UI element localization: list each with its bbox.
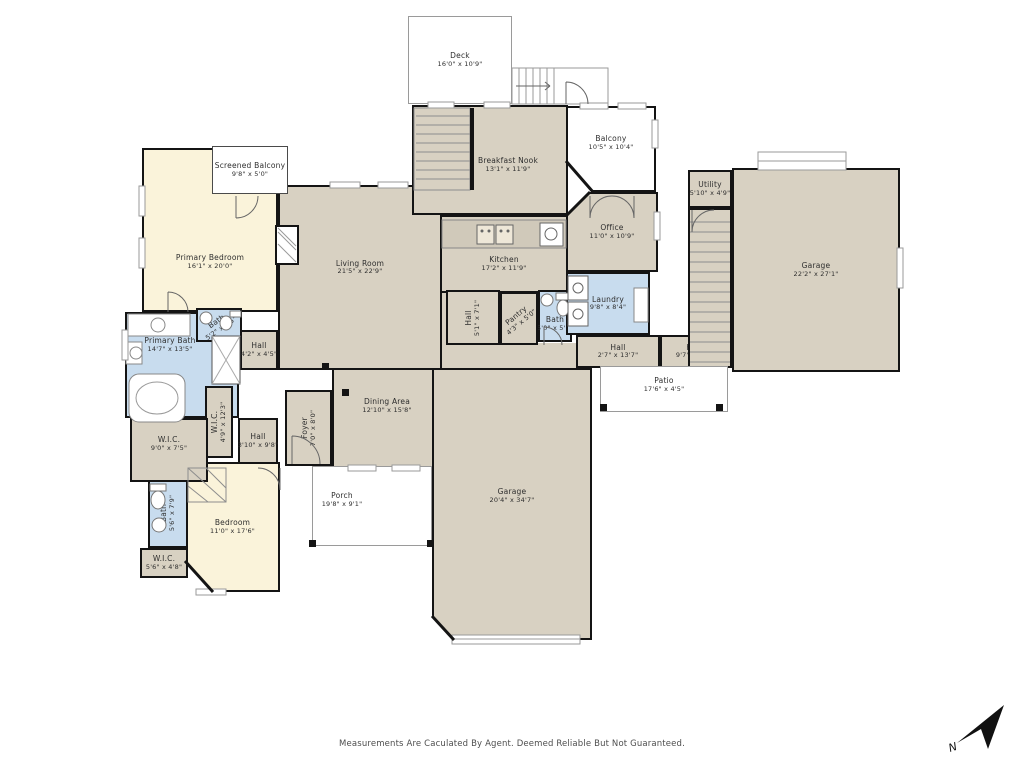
room-label-foyer: Foyer7'0" x 8'0" xyxy=(300,410,316,446)
room-bath-primary-wc: Bath5'2" x 7'5" xyxy=(196,308,242,342)
floor-plan: Living Room21'5" x 22'9"Dining Area12'10… xyxy=(0,0,1024,768)
room-label-kitchen: Kitchen17'2" x 11'9" xyxy=(482,256,527,272)
room-hall-kitchen: Hall5'1" x 7'1" xyxy=(446,290,500,345)
room-label-hall-kitchen: Hall5'1" x 7'1" xyxy=(465,299,481,335)
room-garage-right: Garage22'2" x 27'1" xyxy=(732,168,900,372)
room-label-balcony: Balcony10'5" x 10'4" xyxy=(589,135,634,151)
room-porch: Porch19'8" x 9'1" xyxy=(312,466,432,546)
room-label-screened-balcony: Screened Balcony9'8" x 5'0" xyxy=(215,162,285,178)
room-label-wic-left: W.I.C.9'0" x 7'5" xyxy=(151,436,187,452)
room-stairwell-right xyxy=(688,208,732,368)
room-label-bath-bedroom: Bath5'6" x 7'9" xyxy=(160,495,176,531)
room-label-bedroom: Bedroom11'0" x 17'6" xyxy=(210,519,255,535)
room-label-wic-bottom: W.I.C.5'6" x 4'8" xyxy=(146,555,182,571)
room-label-laundry: Laundry9'8" x 8'4" xyxy=(590,295,626,311)
room-garage-bottom: Garage20'4" x 34'7" xyxy=(432,368,592,640)
room-breakfast-nook: Breakfast Nook13'1" x 11'9" xyxy=(412,105,568,215)
room-wic-left: W.I.C.9'0" x 7'5" xyxy=(130,418,208,482)
room-label-dining-area: Dining Area12'10" x 15'8" xyxy=(362,398,411,414)
room-label-hall-mid-left: Hall2'7" x 13'7" xyxy=(598,343,639,359)
floor-plan-page: Living Room21'5" x 22'9"Dining Area12'10… xyxy=(0,0,1024,768)
room-label-bath-primary-wc: Bath5'2" x 7'5" xyxy=(200,308,239,342)
room-filler-dining-gap xyxy=(442,343,576,370)
room-label-hall-bedroom: Hall3'10" x 9'8" xyxy=(238,433,279,449)
room-deck: Deck16'0" x 10'9" xyxy=(408,16,512,104)
room-label-breakfast-nook: Breakfast Nook13'1" x 11'9" xyxy=(478,157,538,173)
room-label-garage-right: Garage22'2" x 27'1" xyxy=(794,262,839,278)
room-label-garage-bottom: Garage20'4" x 34'7" xyxy=(490,488,535,504)
room-hall-bath: Hall4'2" x 4'5" xyxy=(240,330,278,370)
room-dining-area: Dining Area12'10" x 15'8" xyxy=(332,368,442,468)
room-label-utility: Utility5'10" x 4'9" xyxy=(690,181,731,197)
room-label-primary-bedroom: Primary Bedroom16'1" x 20'0" xyxy=(176,254,244,270)
room-label-patio: Patio17'6" x 4'5" xyxy=(644,377,685,393)
room-screened-balcony: Screened Balcony9'8" x 5'0" xyxy=(212,146,288,194)
room-kitchen: Kitchen17'2" x 11'9" xyxy=(440,215,568,293)
room-label-porch: Porch19'8" x 9'1" xyxy=(322,492,363,508)
room-office: Office11'0" x 10'9" xyxy=(566,192,658,272)
room-hall-bedroom: Hall3'10" x 9'8" xyxy=(238,418,278,464)
room-patio: Patio17'6" x 4'5" xyxy=(600,366,728,412)
room-utility: Utility5'10" x 4'9" xyxy=(688,170,732,208)
room-wic-bottom: W.I.C.5'6" x 4'8" xyxy=(140,548,188,578)
room-bath-bedroom: Bath5'6" x 7'9" xyxy=(148,478,188,548)
room-balcony: Balcony10'5" x 10'4" xyxy=(566,106,656,192)
room-wic-vertical: W.I.C.4'9" x 12'3" xyxy=(205,386,233,458)
room-pantry: Pantry4'3" x 5'0" xyxy=(500,292,538,345)
room-label-deck: Deck16'0" x 10'9" xyxy=(438,52,483,68)
room-label-wic-vertical: W.I.C.4'9" x 12'3" xyxy=(211,402,227,443)
room-label-office: Office11'0" x 10'9" xyxy=(590,224,635,240)
room-foyer: Foyer7'0" x 8'0" xyxy=(285,390,332,466)
room-hall-mid-left: Hall2'7" x 13'7" xyxy=(576,335,660,368)
room-laundry: Laundry9'8" x 8'4" xyxy=(566,272,650,335)
room-label-hall-bath: Hall4'2" x 4'5" xyxy=(241,342,277,358)
room-label-living-room: Living Room21'5" x 22'9" xyxy=(336,259,384,275)
disclaimer-text: Measurements Are Caculated By Agent. Dee… xyxy=(339,739,685,749)
room-label-pantry: Pantry4'3" x 5'0" xyxy=(500,301,538,337)
room-label-primary-bath: Primary Bath14'7" x 13'5" xyxy=(144,337,195,353)
